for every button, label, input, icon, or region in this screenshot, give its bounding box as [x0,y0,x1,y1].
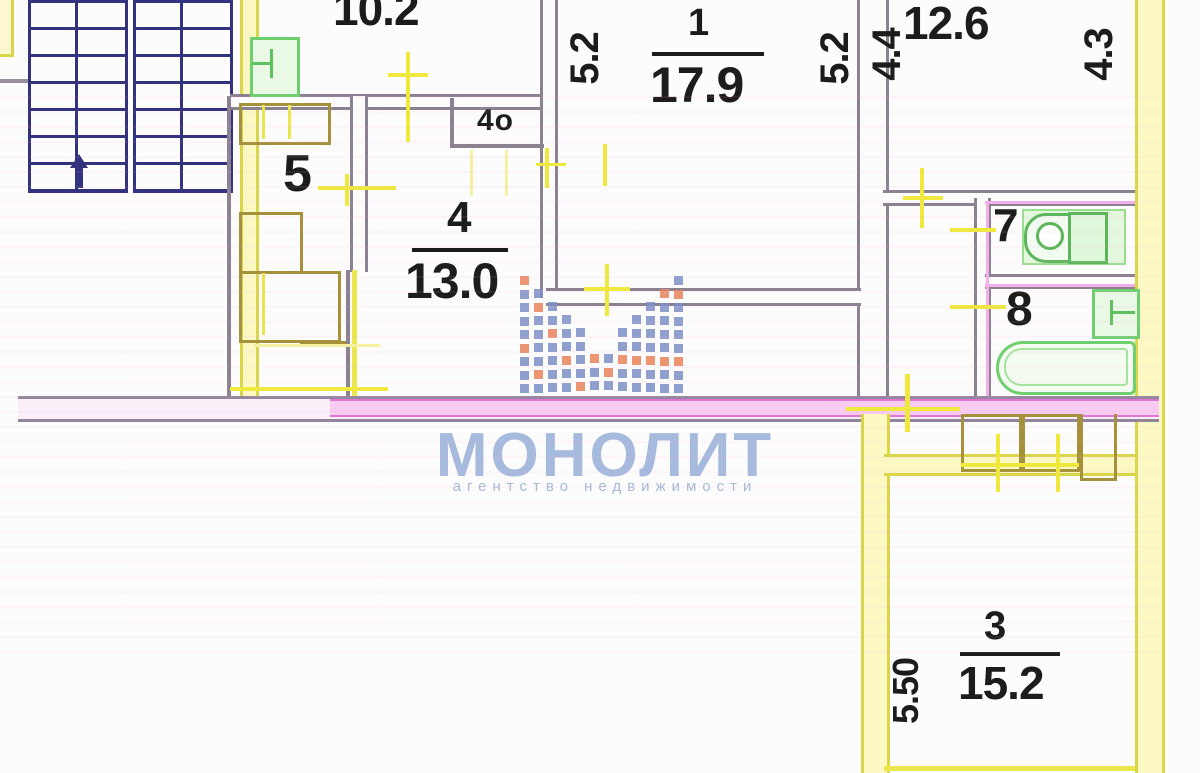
wall [352,270,357,398]
bathtub-inner-line [1004,348,1128,386]
dimension-label: 5.2 [812,0,858,138]
wall [288,105,291,139]
fraction-line [960,652,1060,656]
dimension-label: 5.50 [884,628,928,754]
dim-room1-right: 5.2 [813,32,858,85]
door-marker [505,150,508,196]
door-marker [905,374,910,432]
kitchen-sink-icon [270,49,273,78]
dim-room1-left: 5.2 [563,32,608,85]
door-marker [961,463,1079,467]
room-1-area: 17.9 [650,60,743,110]
dim-room3-height: 5.50 [885,658,927,724]
dim-room2-left: 4.4 [865,28,910,81]
door-marker [406,52,410,142]
closet-box [239,271,341,343]
wall [0,0,14,57]
dimension-label: 5.2 [562,0,608,138]
fraction-line [412,248,508,252]
room-4-number: 4 [447,196,470,240]
room-1-number: 1 [688,4,708,42]
door-marker [545,148,549,188]
fraction-line [652,52,764,56]
floor-plan-scan: МОНОЛИТ агентство недвижимости 10.2 1 17… [0,0,1200,773]
closet-box [239,103,331,145]
toilet-bowl-circle [1036,222,1064,250]
wall [450,144,544,148]
bathroom-sink-icon [1092,289,1140,339]
room-3-number: 3 [984,606,1005,646]
door-marker [903,196,943,200]
dimension-label: 4.4 [866,0,908,134]
wall [262,273,265,335]
door-marker [846,407,960,411]
closet-label: 4о [477,106,514,136]
wc-number: 7 [993,202,1018,248]
wall [540,0,558,298]
wall [346,270,350,398]
bathroom-number: 8 [1006,286,1032,334]
wall [450,98,454,148]
hallway-number: 5 [283,148,311,200]
dimension-label: 4.3 [1078,0,1120,134]
door-marker [536,163,566,166]
wall [0,79,28,83]
room-4-area: 13.0 [405,256,498,306]
kitchen-area-label: 10.2 [333,0,419,32]
door-marker [470,150,473,196]
door-marker [345,174,349,206]
wall [227,96,231,396]
door-marker [388,73,428,77]
kitchen-sink-icon [250,37,300,97]
door-marker [950,228,996,232]
closet-box [239,212,303,274]
closet-box [1080,414,1117,481]
toilet-tank-icon [1068,212,1108,264]
room-2-area: 12.6 [903,0,989,46]
dim-room2-right: 4.3 [1077,28,1122,81]
bathroom-sink-icon [1113,311,1135,314]
kitchen-sink-icon [252,62,272,65]
door-marker [254,344,380,347]
door-marker [603,144,607,186]
door-marker [230,387,388,391]
room-3-area: 15.2 [958,660,1044,706]
wall [1135,0,1165,773]
wall [262,105,265,139]
door-marker [584,287,630,291]
staircase-flight [133,0,233,193]
door-marker [318,186,396,190]
door-marker [950,305,1006,309]
wall [350,96,368,272]
watermark-subtitle: агентство недвижимости [420,478,790,495]
wall [884,766,1135,771]
stairs-direction-arrow-stem [76,166,83,188]
